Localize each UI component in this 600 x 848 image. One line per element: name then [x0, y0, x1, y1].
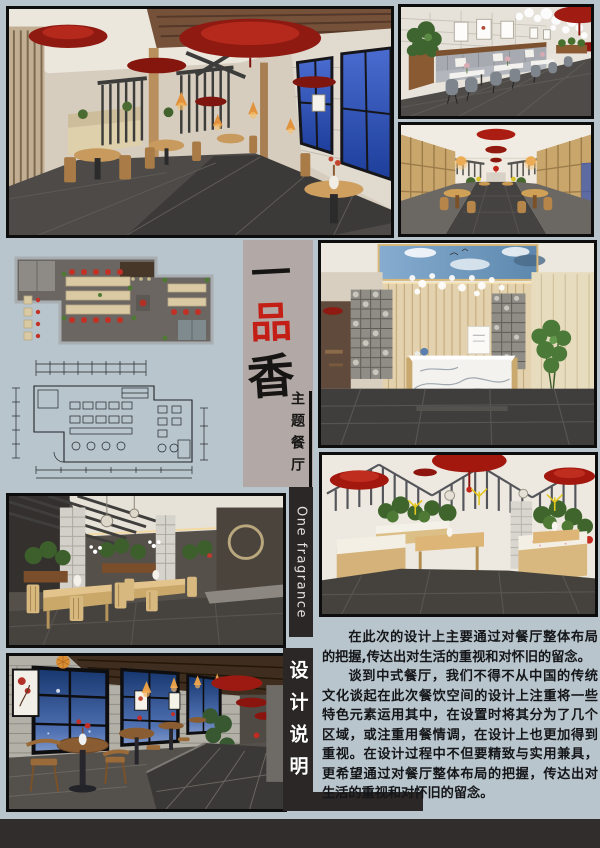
photo-night-windows: [6, 653, 287, 812]
photo-main-dining-hall: [6, 6, 394, 238]
title-char-pin: 品: [242, 301, 299, 345]
photo-booth-seating: [398, 4, 594, 119]
floorplan-render: [8, 250, 214, 347]
floorplan-render-illustration: [8, 250, 214, 347]
cad-floorplan-illustration: [6, 356, 215, 482]
photo-corridor: [398, 122, 594, 237]
design-description: 在此次的设计上主要通过对餐厅整体布局的把握,传达出对生活的重视和对怀旧的留念。 …: [322, 628, 598, 804]
cad-floorplan: [6, 356, 215, 482]
photo-wood-dining: [6, 493, 286, 648]
design-poster-board: 一 品 香 主题餐厅 One fragrance 设计说明 在此次的设计上主要通…: [0, 0, 600, 848]
wood-dining-illustration: [9, 496, 283, 645]
title-char-yi: 一: [242, 253, 300, 296]
english-title-text: One fragrance: [294, 506, 309, 619]
subtitle-divider-bar: [309, 391, 312, 487]
footer-bar: [0, 819, 600, 848]
photo-booth-pergola: [319, 452, 598, 617]
reception-illustration: [321, 243, 594, 445]
english-title-strip: One fragrance: [289, 487, 313, 637]
design-notes-strip: 设计说明: [283, 648, 313, 811]
night-windows-illustration: [9, 656, 284, 809]
corridor-illustration: [401, 125, 591, 234]
booth-seating-illustration: [401, 7, 591, 116]
subtitle-theme-restaurant: 主题餐厅: [287, 391, 307, 487]
title-panel: 一 品 香 主题餐厅: [243, 240, 313, 487]
description-paragraph-2: 谈到中式餐厅，我们不得不从中国的传统文化谈起在此次餐饮空间的设计上注重将一些特色…: [322, 667, 598, 804]
booth-pergola-illustration: [322, 455, 595, 614]
description-paragraph-1: 在此次的设计上主要通过对餐厅整体布局的把握,传达出对生活的重视和对怀旧的留念。: [322, 628, 598, 667]
photo-reception: [318, 240, 597, 448]
main-dining-illustration: [9, 9, 391, 235]
design-notes-label: 设计说明: [285, 660, 312, 811]
